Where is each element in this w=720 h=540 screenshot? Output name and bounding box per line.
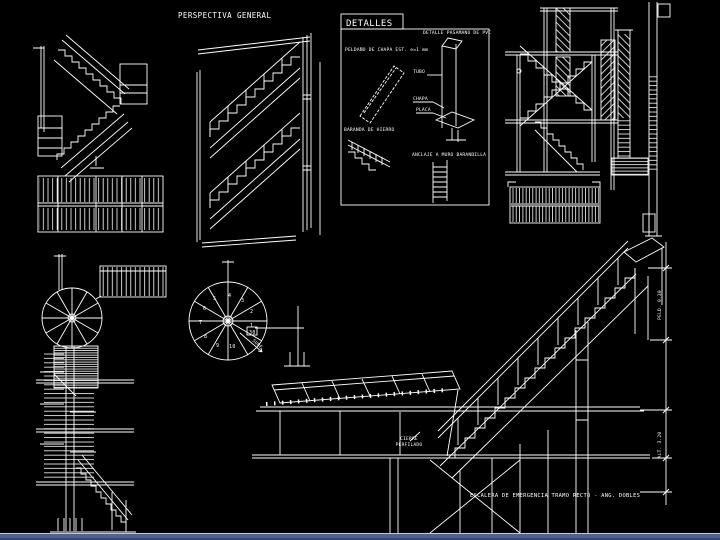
tread-number: 7 <box>199 320 202 326</box>
dimension-lower: ALT. 3.20 <box>657 432 663 459</box>
section-plan-hatched <box>508 182 600 223</box>
stair-plan-hatched <box>38 176 163 232</box>
tread-number: 1 <box>250 323 253 329</box>
label-placa: PLACA <box>416 107 431 113</box>
ladder-tower <box>601 30 648 175</box>
ustair-perspective <box>33 35 147 182</box>
drawing-banner: ESCALERA DE EMERGENCIA TRAMO RECTO - ANG… <box>470 493 640 499</box>
details-panel <box>341 14 489 205</box>
label-post: TUBO <box>413 69 425 75</box>
label-iron-rail: BARANDA DE HIERRO <box>344 127 394 133</box>
closure-label-line1: CIERRE <box>400 436 418 442</box>
label-handrail-pvc: DETALLE PASAMANO DE PVC <box>423 30 491 36</box>
window-bottom-edge <box>0 533 720 540</box>
tread-number: 4 <box>228 293 231 299</box>
tread-number: 2 <box>250 309 253 315</box>
tread-number: 5 <box>213 296 216 302</box>
spiral-elevation <box>36 346 136 532</box>
label-chapa: CHAPA <box>413 96 428 102</box>
general-perspective <box>197 33 320 247</box>
cad-canvas[interactable]: PERSPECTIVA GENERAL <box>0 0 720 533</box>
drawing-sheet: PERSPECTIVA GENERAL <box>0 0 720 533</box>
small-spiral-plan <box>42 254 166 348</box>
emergency-stair-isometric <box>252 238 672 533</box>
closure-label-line2: PERFILADO <box>396 442 423 448</box>
dimension-upper: PELD. 0.30 <box>657 290 663 320</box>
wall-ladder <box>643 2 670 236</box>
tread-number: 9 <box>216 343 219 349</box>
tread-number: 3 <box>241 298 244 304</box>
label-step-plate: PELDAÑO DE CHAPA EST. e=1 mm <box>345 46 428 53</box>
sheet-title: PERSPECTIVA GENERAL <box>178 11 271 20</box>
details-title: DETALLES <box>346 19 393 29</box>
tread-width-value: 30 <box>249 330 256 336</box>
tread-number: 6 <box>203 306 206 312</box>
tread-number: 10 <box>229 344 236 350</box>
label-wall-anchor: ANCLAJE A MURO BARANDILLA <box>412 152 486 158</box>
tread-number: 8 <box>204 334 207 340</box>
